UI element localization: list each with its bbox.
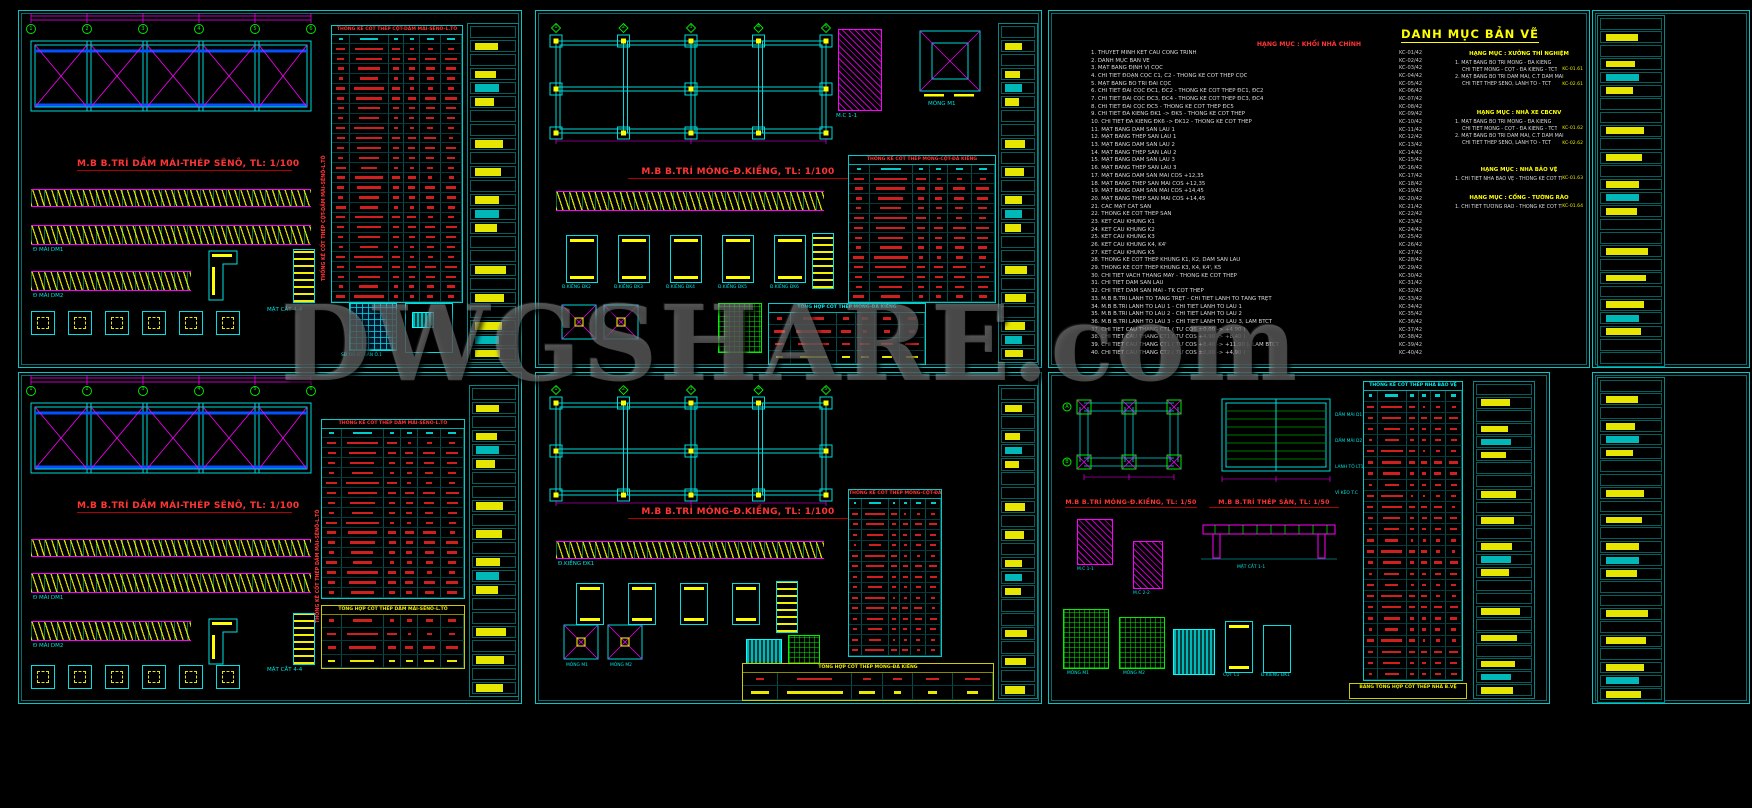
titleblock-cell <box>1600 447 1662 459</box>
index-section-line: 1. CHI TIẾT NHÀ BẢO VỆ - THỐNG KÊ CỐT TH… <box>1455 175 1583 182</box>
titleblock-cell <box>1600 501 1662 513</box>
drawing-list: 1. THUYẾT MINH KẾT CẤU CÔNG TRÌNHKC-01/4… <box>1091 49 1439 357</box>
titleblock-cell <box>1001 208 1035 220</box>
titleblock-cell <box>1600 474 1662 486</box>
titleblock-strip <box>467 23 519 363</box>
titleblock-cell <box>470 82 516 94</box>
column-ladder-detail <box>776 581 798 633</box>
titleblock-cell <box>1001 236 1035 248</box>
titleblock-cell <box>472 458 516 470</box>
drawing-list-item: 15. MẶT BẰNG DẦM SÀN LẦU 3KC-15/42 <box>1091 157 1439 165</box>
titleblock-cell <box>1600 299 1662 311</box>
titleblock-cell <box>1001 180 1035 192</box>
section-label: MẶT CẮT 1-1 <box>1237 565 1265 570</box>
schedule-row <box>322 528 464 538</box>
titleblock-cell <box>1001 68 1035 80</box>
titleblock-cell <box>1600 219 1662 231</box>
titleblock-strip <box>998 23 1038 363</box>
schedule-row <box>849 282 995 292</box>
schedule-row <box>322 518 464 528</box>
column-ladder-detail <box>812 233 834 289</box>
column-label: CỘT C1 <box>1223 673 1239 678</box>
titleblock-strip <box>1597 15 1665 367</box>
plan-title: M.B B.TRÍ MÓNG-Đ.KIỀNG, TL: 1/100 <box>628 507 848 519</box>
titleblock-cell <box>1476 462 1532 473</box>
index-section-line: CHI TIẾT MÓNG - CỘT - ĐÀ KIỀNG - TCTKC-0… <box>1455 125 1583 132</box>
summary-title: TỔNG HỢP CỐT THÉP MÓNG-ĐÀ KIỀNG <box>769 304 925 313</box>
schedule-row <box>1364 569 1462 580</box>
titleblock-cell <box>1001 585 1035 597</box>
titleblock-cell <box>1001 430 1035 442</box>
titleblock-cell <box>1476 632 1532 643</box>
beam-label: Đ MÁI DM1 <box>33 595 63 601</box>
titleblock-cell <box>1001 54 1035 66</box>
schedule-row <box>849 174 995 184</box>
schedule-row <box>322 558 464 568</box>
titleblock-cell <box>1476 436 1532 447</box>
footing-hatch-detail <box>1063 609 1109 669</box>
drawing-list-item: 22. THỐNG KÊ CỐT THÉP SÀNKC-22/42 <box>1091 210 1439 218</box>
beam-section-detail <box>576 583 604 625</box>
dk-label: Đ.KIỀNG ĐK5 <box>718 285 747 290</box>
titleblock-cell <box>1600 45 1662 57</box>
titleblock-cell <box>1600 339 1662 351</box>
schedule-row <box>1364 413 1462 424</box>
schedule-row <box>849 635 941 646</box>
sheet-roof-framing-2: M.B B.TRÍ DẦM MÁI-THÉP SÊNÔ, TL: 1/100 Đ… <box>18 372 522 704</box>
titleblock-cell <box>1001 320 1035 332</box>
schedule-row <box>332 243 462 253</box>
schedule-row <box>332 262 462 272</box>
section-label: MẶT CẮT 4-4 <box>267 667 302 673</box>
column-section-detail <box>216 311 240 335</box>
plan-title: M.B B.TRÍ MÓNG-Đ.KIỀNG, TL: 1/50 <box>1065 499 1197 508</box>
titleblock-cell <box>470 194 516 206</box>
schedule-row <box>332 54 462 64</box>
detail-box <box>405 303 453 353</box>
column-section-detail <box>142 665 166 689</box>
titleblock-cell <box>1476 658 1532 669</box>
titleblock-cell <box>470 138 516 150</box>
schedule-row <box>849 614 941 625</box>
schedule-body <box>1364 391 1462 681</box>
schedule-row <box>849 583 941 594</box>
schedule-row <box>1364 424 1462 435</box>
titleblock-cell <box>1600 393 1662 405</box>
titleblock-cell <box>1600 232 1662 244</box>
axis-bubble: 5 <box>820 386 832 392</box>
index-section-block: HẠNG MỤC : NHÀ BẢO VỆ1. CHI TIẾT NHÀ BẢO… <box>1455 167 1583 182</box>
schedule-row <box>322 468 464 478</box>
schedule-row <box>332 213 462 223</box>
schedule-row <box>849 593 941 604</box>
index-section-header: HẠNG MỤC : XƯỞNG THÍ NGHIỆM <box>1455 51 1583 57</box>
drawing-list-item: 12. MẶT BẰNG THÉP SÀN LẦU 1KC-12/42 <box>1091 134 1439 142</box>
titleblock-cell <box>1476 580 1532 591</box>
titleblock-cell <box>472 514 516 526</box>
schedule-row <box>849 273 995 283</box>
titleblock-cell <box>472 472 516 484</box>
titleblock-cell <box>1600 98 1662 110</box>
section-label: M.C 1-1 <box>836 113 857 119</box>
schedule-row <box>332 272 462 282</box>
titleblock-cell <box>1600 58 1662 70</box>
axis-bubble: 5 <box>249 26 261 32</box>
titleblock-cell <box>1476 567 1532 578</box>
titleblock-strip <box>1597 377 1665 703</box>
drawing-list-item: 40. CHI TIẾT CẦU THANG CT2 ( TỪ CỐS ±0,0… <box>1091 349 1439 357</box>
schedule-row <box>1364 446 1462 457</box>
index-section-line: 1. CHI TIẾT TƯỜNG RÀO - THỐNG KÊ CỐT THÉ… <box>1455 203 1583 210</box>
titleblock-cell <box>1600 608 1662 620</box>
schedule-row <box>332 233 462 243</box>
section-label: M.C 2-2 <box>1133 591 1150 596</box>
column-section-detail <box>68 665 92 689</box>
index-section-line: CHI TIẾT THÉP SÊNÔ, LANH TÔ - TCTKC-02.6… <box>1455 81 1583 88</box>
column-section-detail <box>142 311 166 335</box>
beam-section-detail <box>628 583 656 625</box>
titleblock-cell <box>1600 635 1662 647</box>
schedule-row <box>332 282 462 292</box>
titleblock-cell <box>470 348 516 360</box>
schedule-row <box>849 646 941 657</box>
axis-bubble: 1 <box>550 24 562 30</box>
schedule-row <box>1364 613 1462 624</box>
titleblock-cell <box>1001 166 1035 178</box>
titleblock-cell <box>1476 410 1532 421</box>
beam-elevation <box>31 225 311 245</box>
index-title: DANH MỤC BẢN VẼ <box>1401 27 1539 43</box>
schedule-row <box>849 499 941 510</box>
drawing-list-item: 14. MẶT BẰNG THÉP SÀN LẦU 2KC-14/42 <box>1091 149 1439 157</box>
drawing-list-item: 9. CHI TIẾT ĐÀ KIỀNG ĐK1 -> ĐK5 - THỐNG … <box>1091 111 1439 119</box>
schedule-row <box>849 243 995 253</box>
schedule-row <box>322 498 464 508</box>
titleblock-cell <box>472 668 516 680</box>
schedule-title: THỐNG KÊ CỐT THÉP CỘT-DẦM MÁI-SÊNÔ-L.TÔ <box>332 26 462 35</box>
schedule-title: THỐNG KÊ CỐT THÉP MÓNG-CỘT-ĐÀ KIỀNG <box>849 490 941 499</box>
titleblock-cell <box>1476 528 1532 539</box>
beam-section-detail <box>670 235 702 283</box>
dk-label: Đ.KIỀNG ĐK1 <box>558 561 594 567</box>
schedule-row <box>332 124 462 134</box>
titleblock-cell <box>472 416 516 428</box>
titleblock-cell <box>1600 675 1662 687</box>
titleblock-cell <box>470 54 516 66</box>
schedule-row <box>322 548 464 558</box>
axis-bubble: 4 <box>753 386 765 392</box>
titleblock-cell <box>472 528 516 540</box>
schedule-row <box>332 153 462 163</box>
titleblock-cell <box>1600 554 1662 566</box>
footing-label: MÓNG M1 <box>1067 671 1089 676</box>
drawing-list-item: 8. CHI TIẾT ĐÀI CỌC ĐC5 - THỐNG KÊ CỐT T… <box>1091 103 1439 111</box>
schedule-row <box>1364 580 1462 591</box>
beam-elevation <box>31 573 311 593</box>
titleblock-strip <box>998 385 1038 699</box>
titleblock-cell <box>1600 312 1662 324</box>
dk-label: Đ.KIỀNG ĐK6 <box>770 285 799 290</box>
titleblock-cell <box>1001 684 1035 696</box>
schedule-row <box>322 588 464 598</box>
axis-bubble: 1 <box>25 386 37 392</box>
schedule-row <box>322 655 464 668</box>
titleblock-cell <box>1600 286 1662 298</box>
titleblock-cell <box>472 682 516 694</box>
titleblock-cell <box>1600 688 1662 700</box>
member-label: LANH TÔ LT1 <box>1335 465 1363 470</box>
schedule-title: THỐNG KÊ CỐT THÉP NHÀ BẢO VỆ <box>1364 382 1462 391</box>
column-section-detail <box>179 311 203 335</box>
column-section-detail <box>179 665 203 689</box>
drawing-list-item: 33. M.B B.TRÍ LANH TÔ TẦNG TRỆT - CHI TI… <box>1091 295 1439 303</box>
schedule-body <box>849 499 941 657</box>
titleblock-cell <box>470 306 516 318</box>
titleblock-cell <box>472 444 516 456</box>
titleblock-cell <box>1476 449 1532 460</box>
summary-body <box>769 313 925 365</box>
titleblock-cell <box>470 166 516 178</box>
schedule-row <box>743 686 993 700</box>
schedule-row <box>849 530 941 541</box>
schedule-row <box>322 568 464 578</box>
beam-section-detail <box>680 583 708 625</box>
index-section-header: HẠNG MỤC : NHÀ XE CBCNV <box>1455 110 1583 116</box>
titleblock-cell <box>1600 165 1662 177</box>
schedule-row <box>849 604 941 615</box>
titleblock-cell <box>1600 621 1662 633</box>
schedule-row <box>849 233 995 243</box>
schedule-title: THỐNG KÊ CỐT THÉP MÓNG-CỘT-ĐÀ KIỀNG <box>849 156 995 165</box>
titleblock-cell <box>472 500 516 512</box>
axis-bubble: 2 <box>618 386 630 392</box>
schedule-row <box>332 252 462 262</box>
titleblock-cell <box>1600 18 1662 30</box>
schedule-row <box>849 165 995 175</box>
axis-bubble: 2 <box>618 24 630 30</box>
titleblock-cell <box>1001 627 1035 639</box>
beam-section-detail <box>732 583 760 625</box>
titleblock-cell <box>1001 543 1035 555</box>
titleblock-cell <box>1001 194 1035 206</box>
titleblock-cell <box>1001 444 1035 456</box>
schedule-row <box>322 578 464 588</box>
drawing-list-item: 32. CHI TIẾT DẦM SÀN MÁI - TK CỐT THÉPKC… <box>1091 287 1439 295</box>
titleblock-cell <box>1001 472 1035 484</box>
schedule-row <box>849 214 995 224</box>
plan-title: M.B B.TRÍ MÓNG-Đ.KIỀNG, TL: 1/100 <box>628 167 848 179</box>
schedule-row <box>1364 402 1462 413</box>
footing-label: MÓNG M1 <box>928 101 955 107</box>
schedule-row <box>849 204 995 214</box>
titleblock-cell <box>470 40 516 52</box>
schedule-row <box>849 194 995 204</box>
dk-label: Đ.KIỀNG ĐK1 <box>1261 673 1290 678</box>
schedule-row <box>849 184 995 194</box>
titleblock-cell <box>1600 541 1662 553</box>
titleblock-cell <box>1600 595 1662 607</box>
schedule-row <box>322 615 464 628</box>
titleblock-cell <box>1600 568 1662 580</box>
titleblock-cell <box>1600 434 1662 446</box>
rebar-schedule-table: THỐNG KÊ CỐT THÉP DẦM MÁI-SÊNÔ-L.TÔ <box>321 419 465 599</box>
drawing-list-item: 18. MẶT BẰNG THÉP SÀN MÁI CỐS +12,35KC-1… <box>1091 180 1439 188</box>
titleblock-cell <box>1001 264 1035 276</box>
rebar-schedule-table: THỐNG KÊ CỐT THÉP CỘT-DẦM MÁI-SÊNÔ-L.TÔ <box>331 25 463 303</box>
drawing-list-item: 7. CHI TIẾT ĐÀI CỌC ĐC3, ĐC4 - THỐNG KÊ … <box>1091 95 1439 103</box>
schedule-row <box>769 325 925 338</box>
titleblock-cell <box>1001 529 1035 541</box>
schedule-row <box>1364 558 1462 569</box>
footing-hatch-detail <box>1119 617 1165 669</box>
titleblock-cell <box>1001 110 1035 122</box>
titleblock-cell <box>472 542 516 554</box>
titleblock-cell <box>470 264 516 276</box>
sheet-roof-framing-1: M.B B.TRÍ DẦM MÁI-THÉP SÊNÔ, TL: 1/100 Đ… <box>18 10 522 368</box>
schedule-row <box>849 509 941 520</box>
titleblock-cell <box>472 626 516 638</box>
titleblock-cell <box>470 334 516 346</box>
column-section-detail <box>105 665 129 689</box>
titleblock-cell <box>1476 606 1532 617</box>
drawing-list-item: 24. KẾT CẤU KHUNG K2KC-24/42 <box>1091 226 1439 234</box>
column-ladder-detail <box>293 249 315 303</box>
titleblock-cell <box>1001 334 1035 346</box>
schedule-row <box>849 562 941 573</box>
titleblock-cell <box>470 236 516 248</box>
titleblock-cell <box>1600 487 1662 499</box>
schedule-row <box>1364 480 1462 491</box>
drawing-list-item: 27. KẾT CẤU KHUNG K5KC-27/42 <box>1091 249 1439 257</box>
titleblock-cell <box>1600 31 1662 43</box>
titleblock-cell <box>1600 72 1662 84</box>
sheet-guard-house: M.B B.TRÍ MÓNG-Đ.KIỀNG, TL: 1/50 M.B B.T… <box>1048 372 1550 704</box>
schedule-row <box>322 628 464 641</box>
titleblock-cell <box>472 570 516 582</box>
axis-bubble: 3 <box>137 26 149 32</box>
titleblock-cell <box>1001 557 1035 569</box>
summary-title: BẢNG TỔNG HỢP CỐT THÉP NHÀ B.VỆ <box>1350 684 1466 692</box>
titleblock-cell <box>1001 82 1035 94</box>
titleblock-cell <box>1600 125 1662 137</box>
axis-bubble: 6 <box>305 26 317 32</box>
beam-elevation <box>31 189 311 207</box>
index-section-line: 1. MẶT BẰNG BỐ TRÍ MÓNG - ĐÀ KIỀNG <box>1455 59 1583 66</box>
schedule-title: THỐNG KÊ CỐT THÉP DẦM MÁI-SÊNÔ-L.TÔ <box>322 420 464 429</box>
drawing-list-item: 28. THỐNG KÊ CỐT THÉP KHUNG K1, K2, DẦM … <box>1091 257 1439 265</box>
drawing-list-item: 1. THUYẾT MINH KẾT CẤU CÔNG TRÌNHKC-01/4… <box>1091 49 1439 57</box>
member-label: DẦM MÁI D2 <box>1335 439 1362 444</box>
drawing-list-item: 10. CHI TIẾT ĐÀ KIỀNG ĐK6 -> ĐK12 - THỐN… <box>1091 118 1439 126</box>
schedule-body <box>849 165 995 303</box>
drawing-list-item: 2. DANH MỤC BẢN VẼKC-02/42 <box>1091 57 1439 65</box>
schedule-row <box>849 541 941 552</box>
rebar-schedule-table: THỐNG KÊ CỐT THÉP NHÀ BẢO VỆ <box>1363 381 1463 681</box>
index-section-line: 1. MẶT BẰNG BỐ TRÍ MÓNG - ĐÀ KIỀNG <box>1455 118 1583 125</box>
schedule-row <box>1364 502 1462 513</box>
drawing-list-item: 21. CÁC MẶT CẮT SÀNKC-21/42 <box>1091 203 1439 211</box>
titleblock-cell <box>1001 278 1035 290</box>
beam-elevation <box>31 621 191 641</box>
detail-fill <box>1173 629 1215 675</box>
schedule-row <box>332 203 462 213</box>
drawing-list-item: 17. MẶT BẰNG DẦM SÀN MÁI CỐS +12,35KC-17… <box>1091 172 1439 180</box>
titleblock-cell <box>1476 645 1532 656</box>
plan-title: M.B B.TRÍ DẦM MÁI-THÉP SÊNÔ, TL: 1/100 <box>77 159 292 171</box>
slab-pour-diagram <box>349 303 397 351</box>
summary-table: BẢNG TỔNG HỢP CỐT THÉP NHÀ B.VỆ <box>1349 683 1467 699</box>
titleblock-cell <box>1001 222 1035 234</box>
schedule-row <box>849 551 941 562</box>
schedule-row <box>1364 636 1462 647</box>
schedule-row <box>769 351 925 364</box>
axis-bubble: 1 <box>25 26 37 32</box>
titleblock-cell <box>1600 138 1662 150</box>
slab-label: SĐ ĐỔ BT SÀN Ô.1 <box>341 353 382 358</box>
footing-label: MÓNG M2 <box>1123 671 1145 676</box>
schedule-row <box>322 458 464 468</box>
footing-label: MÓNG M2 <box>610 663 632 668</box>
schedule-row <box>849 520 941 531</box>
titleblock-cell <box>1001 641 1035 653</box>
titleblock-cell <box>1600 326 1662 338</box>
column-section-detail <box>68 311 92 335</box>
titleblock-cell <box>470 292 516 304</box>
titleblock-cell <box>1001 458 1035 470</box>
axis-bubble: 2 <box>81 386 93 392</box>
detail-fill <box>412 312 434 328</box>
titleblock-cell <box>472 640 516 652</box>
titleblock-cell <box>1476 593 1532 604</box>
grade-beam-elevation <box>556 191 824 211</box>
titleblock-cell <box>470 222 516 234</box>
titleblock-cell <box>1476 489 1532 500</box>
schedule-row <box>322 438 464 448</box>
titleblock-cell <box>1476 541 1532 552</box>
schedule-row <box>332 74 462 84</box>
titleblock-cell <box>1001 124 1035 136</box>
titleblock-cell <box>1001 571 1035 583</box>
column-section-detail <box>1225 621 1253 673</box>
schedule-row <box>322 641 464 654</box>
axis-bubble: 6 <box>305 386 317 392</box>
dk-label: Đ.KIỀNG ĐK2 <box>562 285 591 290</box>
drawing-list-item: 31. CHI TIẾT DẦM SÀN LẦUKC-31/42 <box>1091 280 1439 288</box>
index-section-line: 2. MẶT BẰNG BỐ TRÍ DẦM MÁI, C.T DẦM MÁI <box>1455 132 1583 139</box>
titleblock-cell <box>1600 192 1662 204</box>
titleblock-cell <box>1600 205 1662 217</box>
summary-body <box>743 673 993 701</box>
titleblock-cell <box>1001 655 1035 667</box>
schedule-row <box>322 488 464 498</box>
schedule-row <box>322 448 464 458</box>
summary-body <box>322 615 464 669</box>
beam-section-detail <box>566 235 598 283</box>
schedule-row <box>332 44 462 54</box>
schedule-row <box>322 508 464 518</box>
index-section-block: HẠNG MỤC : XƯỞNG THÍ NGHIỆM1. MẶT BẰNG B… <box>1455 51 1583 88</box>
summary-title: TỔNG HỢP CỐT THÉP MÓNG-ĐÀ KIỀNG <box>743 664 993 673</box>
section-label: M.C 1-1 <box>1077 567 1094 572</box>
schedule-body <box>332 35 462 303</box>
drawing-list-item: 19. MẶT BẰNG DẦM SÀN MÁI CỐS +14,45KC-19… <box>1091 187 1439 195</box>
schedule-row <box>1364 457 1462 468</box>
titleblock-cell <box>470 26 516 38</box>
summary-table: TỔNG HỢP CỐT THÉP MÓNG-ĐÀ KIỀNG <box>742 663 994 701</box>
titleblock-cell <box>1476 684 1532 695</box>
axis-bubble: A <box>1061 404 1073 410</box>
schedule-row <box>1364 546 1462 557</box>
